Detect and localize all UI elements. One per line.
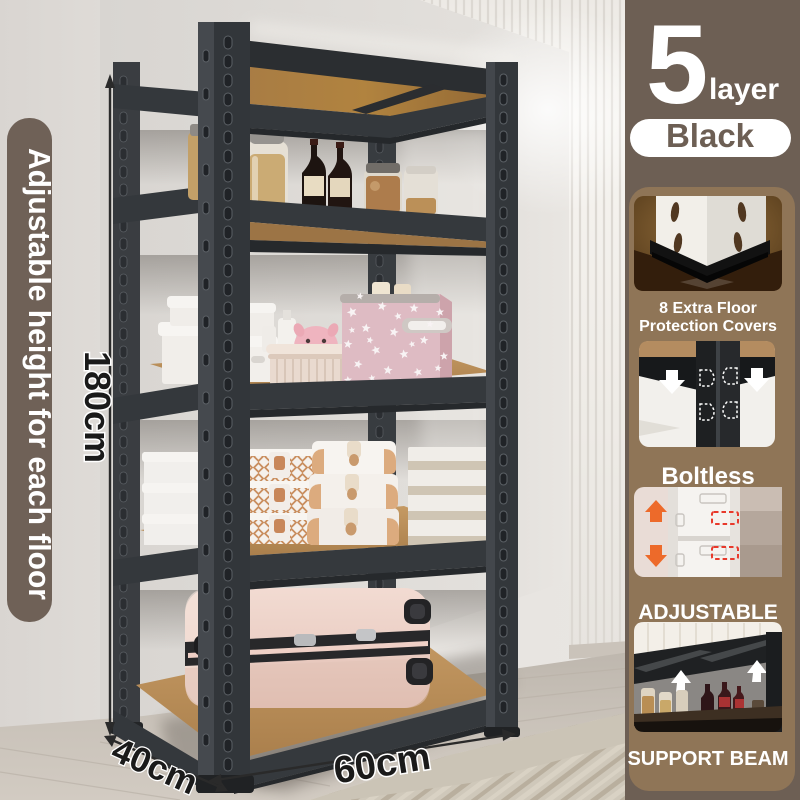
- svg-text:5: 5: [646, 2, 708, 127]
- svg-text:SUPPORT BEAM: SUPPORT BEAM: [627, 748, 788, 770]
- svg-text:Boltless: Boltless: [661, 463, 754, 490]
- svg-text:layer: layer: [709, 73, 779, 106]
- svg-text:ADJUSTABLE: ADJUSTABLE: [638, 601, 778, 624]
- svg-text:180cm: 180cm: [77, 351, 118, 463]
- svg-text:Black: Black: [666, 117, 755, 154]
- svg-text:8 Extra Floor: 8 Extra Floor: [659, 300, 757, 317]
- svg-text:Adjustable height for each flo: Adjustable height for each floor: [22, 148, 56, 600]
- svg-text:Protection Covers: Protection Covers: [639, 318, 777, 335]
